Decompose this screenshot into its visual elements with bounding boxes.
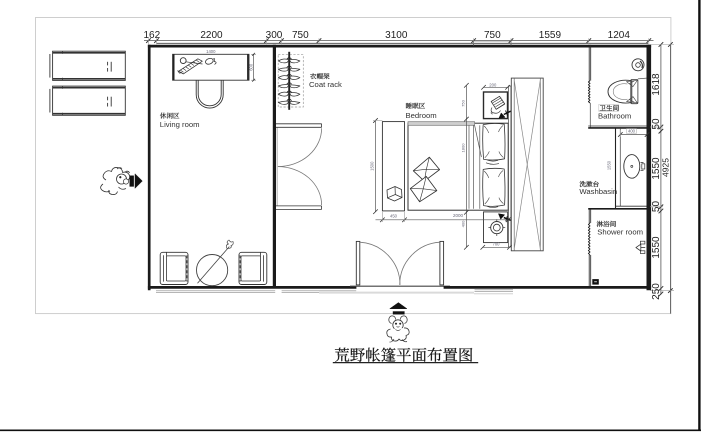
svg-text:400: 400 <box>460 220 465 227</box>
svg-text:1500: 1500 <box>369 161 374 171</box>
svg-text:750: 750 <box>484 30 501 41</box>
svg-text:Living room: Living room <box>160 120 200 129</box>
svg-text:1800: 1800 <box>460 143 465 153</box>
svg-text:600: 600 <box>249 63 254 71</box>
svg-text:750: 750 <box>292 30 309 41</box>
svg-text:1550: 1550 <box>651 236 662 259</box>
svg-text:450: 450 <box>390 214 398 219</box>
svg-text:4925: 4925 <box>660 158 670 177</box>
svg-text:700: 700 <box>493 242 501 247</box>
svg-text:750: 750 <box>460 99 465 106</box>
svg-text:1400: 1400 <box>206 49 216 54</box>
svg-text:Bathroom: Bathroom <box>598 112 631 121</box>
svg-text:162: 162 <box>143 30 160 41</box>
svg-text:50: 50 <box>651 201 662 213</box>
svg-text:50: 50 <box>651 118 662 130</box>
svg-text:2000: 2000 <box>453 213 464 218</box>
svg-text:3100: 3100 <box>385 30 408 41</box>
svg-text:Washbasin: Washbasin <box>579 187 617 196</box>
svg-text:1204: 1204 <box>608 30 631 41</box>
svg-text:Bedroom: Bedroom <box>406 111 437 120</box>
svg-text:400: 400 <box>628 129 636 134</box>
svg-text:Shower room: Shower room <box>597 227 643 236</box>
svg-text:300: 300 <box>266 30 283 41</box>
svg-text:1618: 1618 <box>651 73 662 96</box>
svg-text:250: 250 <box>651 283 662 300</box>
svg-text:2200: 2200 <box>200 30 223 41</box>
svg-text:1550: 1550 <box>607 160 612 170</box>
svg-text:1559: 1559 <box>539 30 562 41</box>
svg-text:Coat rack: Coat rack <box>309 80 342 89</box>
svg-text:200: 200 <box>489 82 497 87</box>
